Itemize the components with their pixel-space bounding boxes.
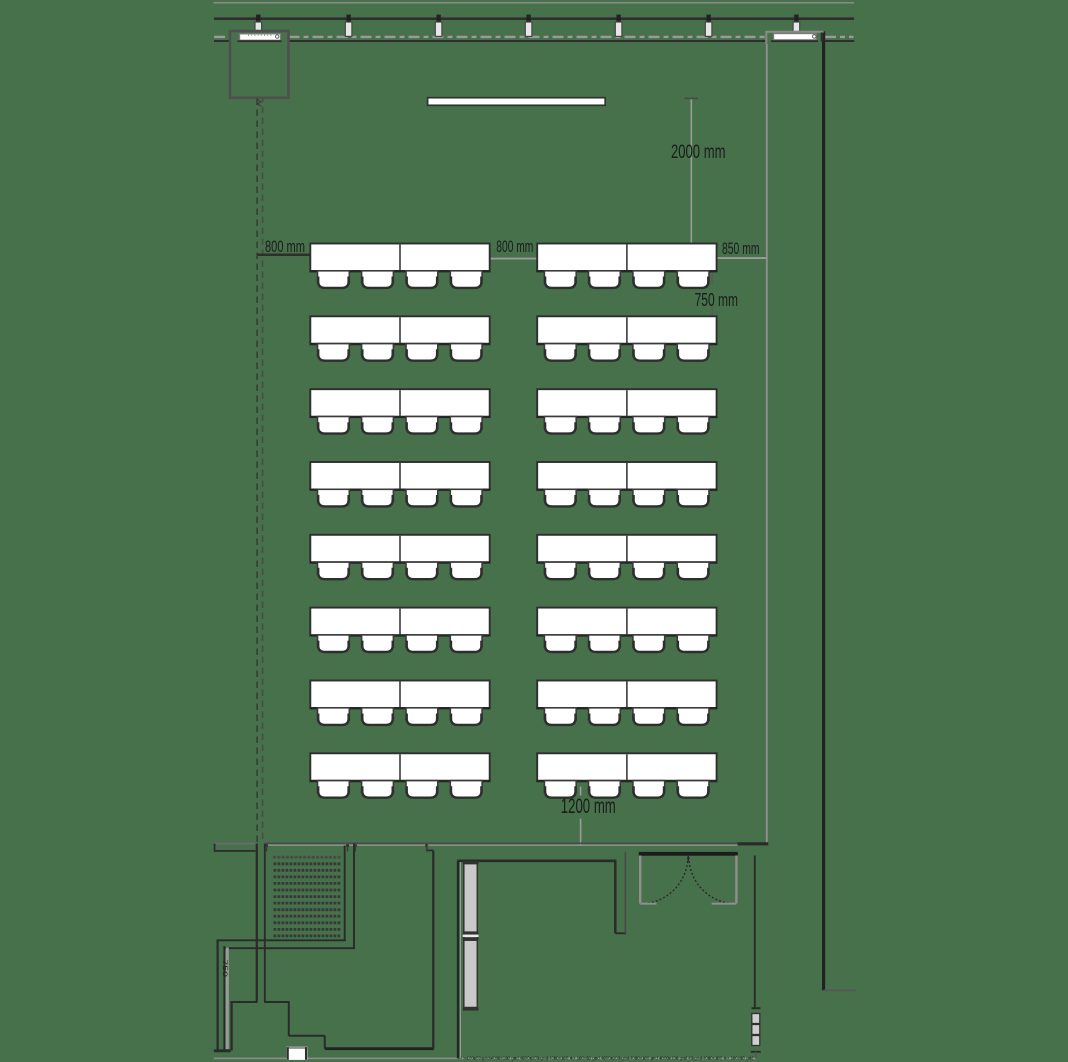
svg-text:800 mm: 800 mm (496, 238, 533, 256)
svg-text:800 mm: 800 mm (265, 238, 305, 256)
svg-text:750 mm: 750 mm (695, 289, 738, 310)
svg-text:2000 mm: 2000 mm (671, 141, 726, 163)
svg-text:750: 750 (221, 960, 228, 978)
svg-text:4 x 100x50 grid 4000x100 grid: 4 x 100x50 grid 4000x100 grid 4000x100 g… (460, 1056, 754, 1061)
svg-text:850 mm: 850 mm (722, 240, 760, 258)
